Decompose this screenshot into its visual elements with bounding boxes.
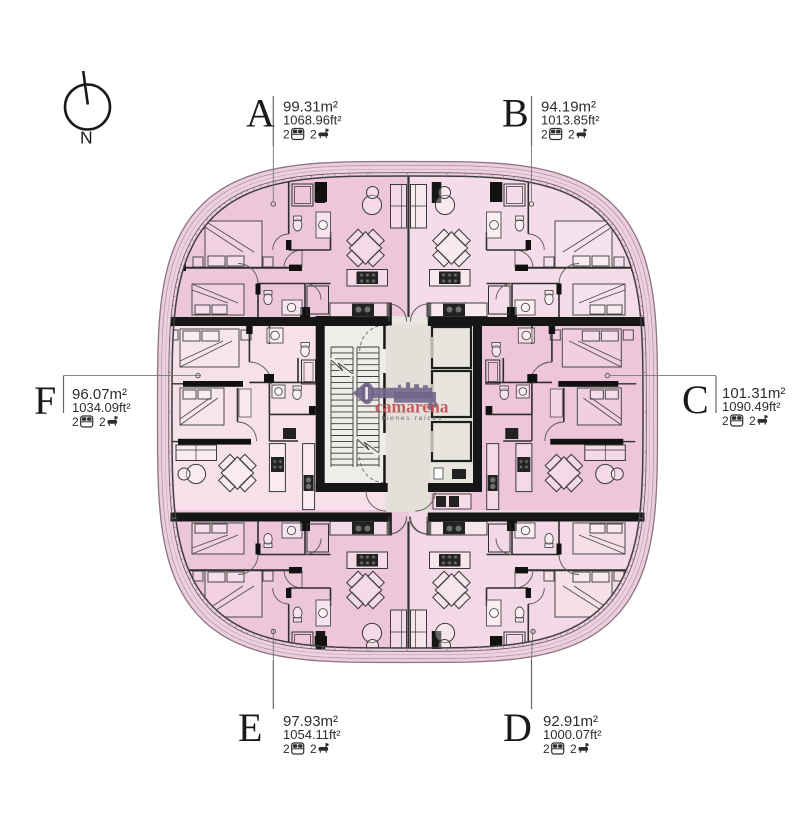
svg-text:camarena: camarena bbox=[375, 397, 449, 417]
svg-text:2: 2 bbox=[283, 742, 290, 756]
svg-text:2: 2 bbox=[99, 415, 106, 429]
svg-text:B: B bbox=[502, 91, 529, 136]
svg-text:2: 2 bbox=[283, 128, 290, 142]
svg-text:D: D bbox=[503, 705, 532, 750]
svg-text:2: 2 bbox=[310, 742, 317, 756]
svg-text:2: 2 bbox=[722, 414, 729, 428]
svg-text:1054.11ft²: 1054.11ft² bbox=[283, 727, 341, 742]
svg-text:bienes raíces: bienes raíces bbox=[382, 415, 443, 422]
svg-text:F: F bbox=[34, 378, 56, 423]
svg-text:2: 2 bbox=[570, 742, 577, 756]
svg-text:2: 2 bbox=[541, 128, 548, 142]
svg-text:1000.07ft²: 1000.07ft² bbox=[543, 727, 602, 742]
svg-text:N: N bbox=[80, 128, 93, 148]
svg-text:2: 2 bbox=[310, 128, 317, 142]
svg-text:1090.49ft²: 1090.49ft² bbox=[722, 399, 781, 414]
svg-text:E: E bbox=[238, 705, 262, 750]
svg-text:C: C bbox=[682, 377, 709, 422]
svg-text:2: 2 bbox=[568, 128, 575, 142]
svg-text:1034.09ft²: 1034.09ft² bbox=[72, 400, 131, 415]
svg-text:2: 2 bbox=[543, 742, 550, 756]
svg-text:A: A bbox=[246, 91, 275, 136]
svg-text:2: 2 bbox=[749, 414, 756, 428]
svg-text:1013.85ft²: 1013.85ft² bbox=[541, 112, 600, 127]
svg-text:1068.96ft²: 1068.96ft² bbox=[283, 112, 342, 127]
svg-text:2: 2 bbox=[72, 415, 79, 429]
